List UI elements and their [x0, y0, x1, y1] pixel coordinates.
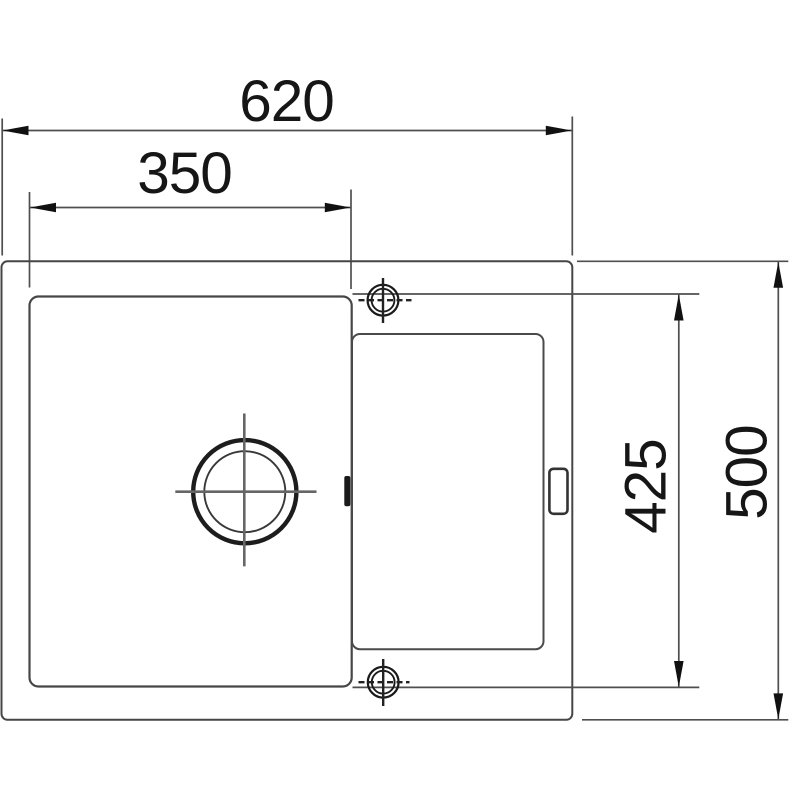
svg-text:500: 500	[715, 425, 780, 520]
svg-text:350: 350	[137, 141, 232, 206]
svg-text:620: 620	[239, 69, 334, 134]
svg-text:425: 425	[614, 439, 679, 534]
